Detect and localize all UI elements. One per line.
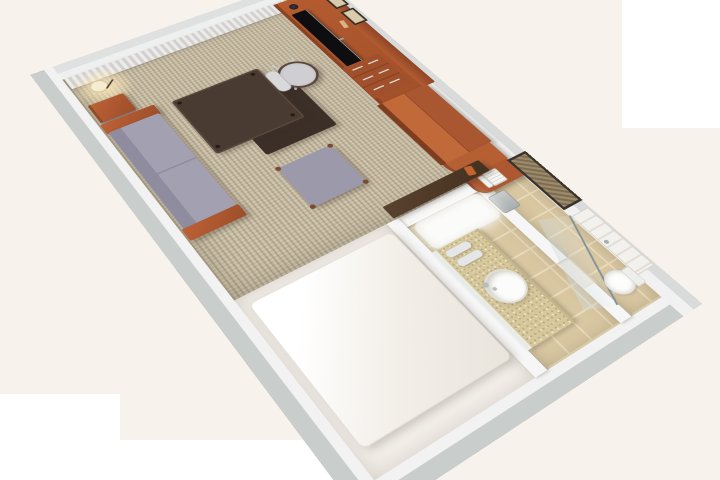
background-patch-top-right xyxy=(622,0,720,128)
background-patch-bottom-left xyxy=(0,394,120,480)
floor-plan-scene xyxy=(0,0,720,480)
room-plan xyxy=(30,0,702,480)
